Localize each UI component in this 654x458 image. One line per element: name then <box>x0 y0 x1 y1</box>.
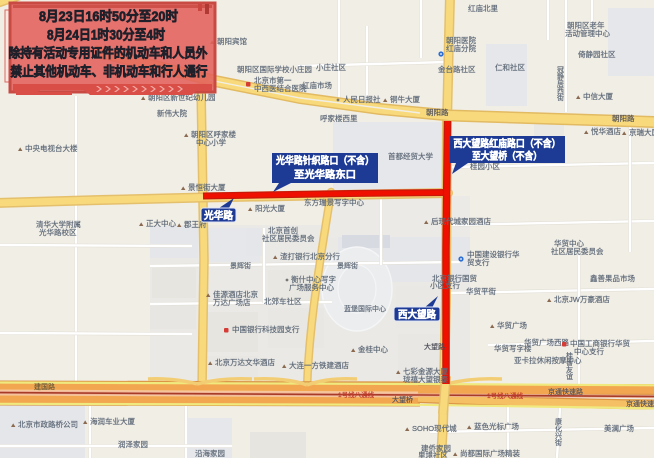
svg-text:后现代城家园酒店: 后现代城家园酒店 <box>431 216 491 226</box>
svg-text:京通快速路: 京通快速路 <box>626 399 654 408</box>
svg-text:光华路: 光华路 <box>203 209 234 222</box>
svg-text:人民日报社: 人民日报社 <box>343 94 381 104</box>
svg-text:社区居民委员会: 社区居民委员会 <box>551 246 604 256</box>
svg-text:景辉街: 景辉街 <box>337 261 358 270</box>
svg-text:呼家楼西里: 呼家楼西里 <box>320 113 358 123</box>
svg-text:里境社区: 里境社区 <box>418 450 448 458</box>
svg-text:倚静园社区: 倚静园社区 <box>578 49 616 59</box>
svg-text:社区居民委员会: 社区居民委员会 <box>262 233 315 243</box>
svg-text:金台路社区: 金台路社区 <box>438 64 476 74</box>
svg-text:景辉街: 景辉街 <box>230 261 251 270</box>
svg-text:除持有活动专用证件的机动车和人员外: 除持有活动专用证件的机动车和人员外 <box>9 46 208 61</box>
svg-text:朝阳宾馆: 朝阳宾馆 <box>217 36 247 46</box>
svg-text:至大望桥（不含）: 至大望桥（不含） <box>472 150 542 163</box>
svg-text:中西医结合医院: 中西医结合医院 <box>254 83 307 93</box>
svg-text:鑫善果品市场: 鑫善果品市场 <box>590 273 635 283</box>
svg-text:东方瑞景写字中心: 东方瑞景写字中心 <box>304 197 364 207</box>
svg-text:光华路校区: 光华路校区 <box>39 227 77 237</box>
svg-text:铜牛大厦: 铜牛大厦 <box>390 94 420 104</box>
svg-text:仁和社区: 仁和社区 <box>495 62 525 72</box>
svg-text:小区支行: 小区支行 <box>430 280 460 290</box>
svg-text:8月23日16时50分至20时: 8月23日16时50分至20时 <box>39 8 178 24</box>
svg-text:红庙北里: 红庙北里 <box>468 3 498 13</box>
svg-text:中国银行科技园支行: 中国银行科技园支行 <box>232 324 300 334</box>
svg-text:北郊车社区: 北郊车社区 <box>264 296 302 306</box>
svg-text:桂香友谊: 桂香友谊 <box>566 351 574 380</box>
svg-text:至光华路东口: 至光华路东口 <box>294 168 356 181</box>
svg-text:大望路: 大望路 <box>424 342 445 351</box>
svg-text:阳光大厦: 阳光大厦 <box>255 203 285 213</box>
svg-text:新伟大院: 新伟大院 <box>157 108 187 118</box>
svg-text:朝阳路: 朝阳路 <box>612 113 635 123</box>
svg-text:蓝堡国际中心: 蓝堡国际中心 <box>344 304 386 313</box>
svg-text:贸支行: 贸支行 <box>467 257 490 267</box>
svg-text:北京市政路桥公司: 北京市政路桥公司 <box>18 419 78 429</box>
svg-text:禁止其他机动车、非机动车和行人通行: 禁止其他机动车、非机动车和行人通行 <box>11 64 208 79</box>
svg-text:北京万达文华酒店: 北京万达文华酒店 <box>215 357 275 367</box>
svg-text:渣打银行北京分行: 渣打银行北京分行 <box>280 251 340 261</box>
svg-text:朝阳路: 朝阳路 <box>426 107 449 117</box>
svg-text:1号线八通线: 1号线八通线 <box>338 390 375 399</box>
svg-text:西大望路红庙路口（不含）: 西大望路红庙路口（不含） <box>454 137 561 150</box>
svg-text:华贸写字楼: 华贸写字楼 <box>494 343 532 353</box>
svg-text:中心支行: 中心支行 <box>574 346 604 356</box>
svg-text:京通快速路: 京通快速路 <box>548 387 583 396</box>
svg-text:SOHO现代城: SOHO现代城 <box>412 423 457 433</box>
svg-text:悦华酒店: 悦华酒店 <box>591 126 621 136</box>
svg-text:正大中心: 正大中心 <box>146 218 176 228</box>
svg-text:蓝色光标广场: 蓝色光标广场 <box>474 421 519 431</box>
svg-text:万达广场店: 万达广场店 <box>213 297 251 307</box>
svg-text:大连一方铁建酒店: 大连一方铁建酒店 <box>289 360 349 370</box>
svg-text:广场服务中心: 广场服务中心 <box>289 282 334 292</box>
svg-text:朝阳区国际学校小庄园: 朝阳区国际学校小庄园 <box>237 64 312 74</box>
svg-text:润泽家园: 润泽家园 <box>118 439 148 449</box>
svg-text:金桂中心: 金桂中心 <box>358 344 388 354</box>
svg-text:华贸广场: 华贸广场 <box>497 320 527 330</box>
svg-text:首都经贸大学: 首都经贸大学 <box>388 151 433 161</box>
svg-text:康化兴街: 康化兴街 <box>555 417 563 447</box>
svg-text:中心小学: 中心小学 <box>196 137 226 147</box>
svg-text:红庙分院: 红庙分院 <box>446 43 476 53</box>
svg-text:光华路针织路口（不含）: 光华路针织路口（不含） <box>275 154 374 167</box>
svg-text:海润车业大厦: 海润车业大厦 <box>90 416 135 426</box>
svg-text:京瑞大厦: 京瑞大厦 <box>629 127 654 137</box>
svg-text:建国路: 建国路 <box>34 382 55 391</box>
svg-text:沿海家园: 沿海家园 <box>195 448 225 458</box>
svg-text:北京JW万豪酒店: 北京JW万豪酒店 <box>554 294 610 304</box>
svg-text:红庙市场: 红庙市场 <box>302 80 332 90</box>
svg-text:美澜广场: 美澜广场 <box>604 423 634 433</box>
svg-text:珑禧大望银泰: 珑禧大望银泰 <box>403 374 448 384</box>
svg-text:尚都国际广场精装: 尚都国际广场精装 <box>460 448 520 458</box>
svg-text:活动管理中心: 活动管理中心 <box>565 28 610 38</box>
svg-text:小庄社区: 小庄社区 <box>316 62 346 72</box>
svg-text:大望桥: 大望桥 <box>392 395 413 404</box>
svg-text:1号线八通线: 1号线八通线 <box>487 391 524 400</box>
svg-text:西大望路: 西大望路 <box>398 308 437 321</box>
svg-text:冠静居西街: 冠静居西街 <box>557 66 565 102</box>
svg-text:中央电视台大楼: 中央电视台大楼 <box>25 143 78 153</box>
svg-text:中信大厦: 中信大厦 <box>583 91 613 101</box>
svg-text:华贸平街: 华贸平街 <box>466 286 496 296</box>
svg-text:8月24日1时30分至4时: 8月24日1时30分至4时 <box>47 27 165 43</box>
svg-text:景恒街大厦: 景恒街大厦 <box>188 182 226 192</box>
